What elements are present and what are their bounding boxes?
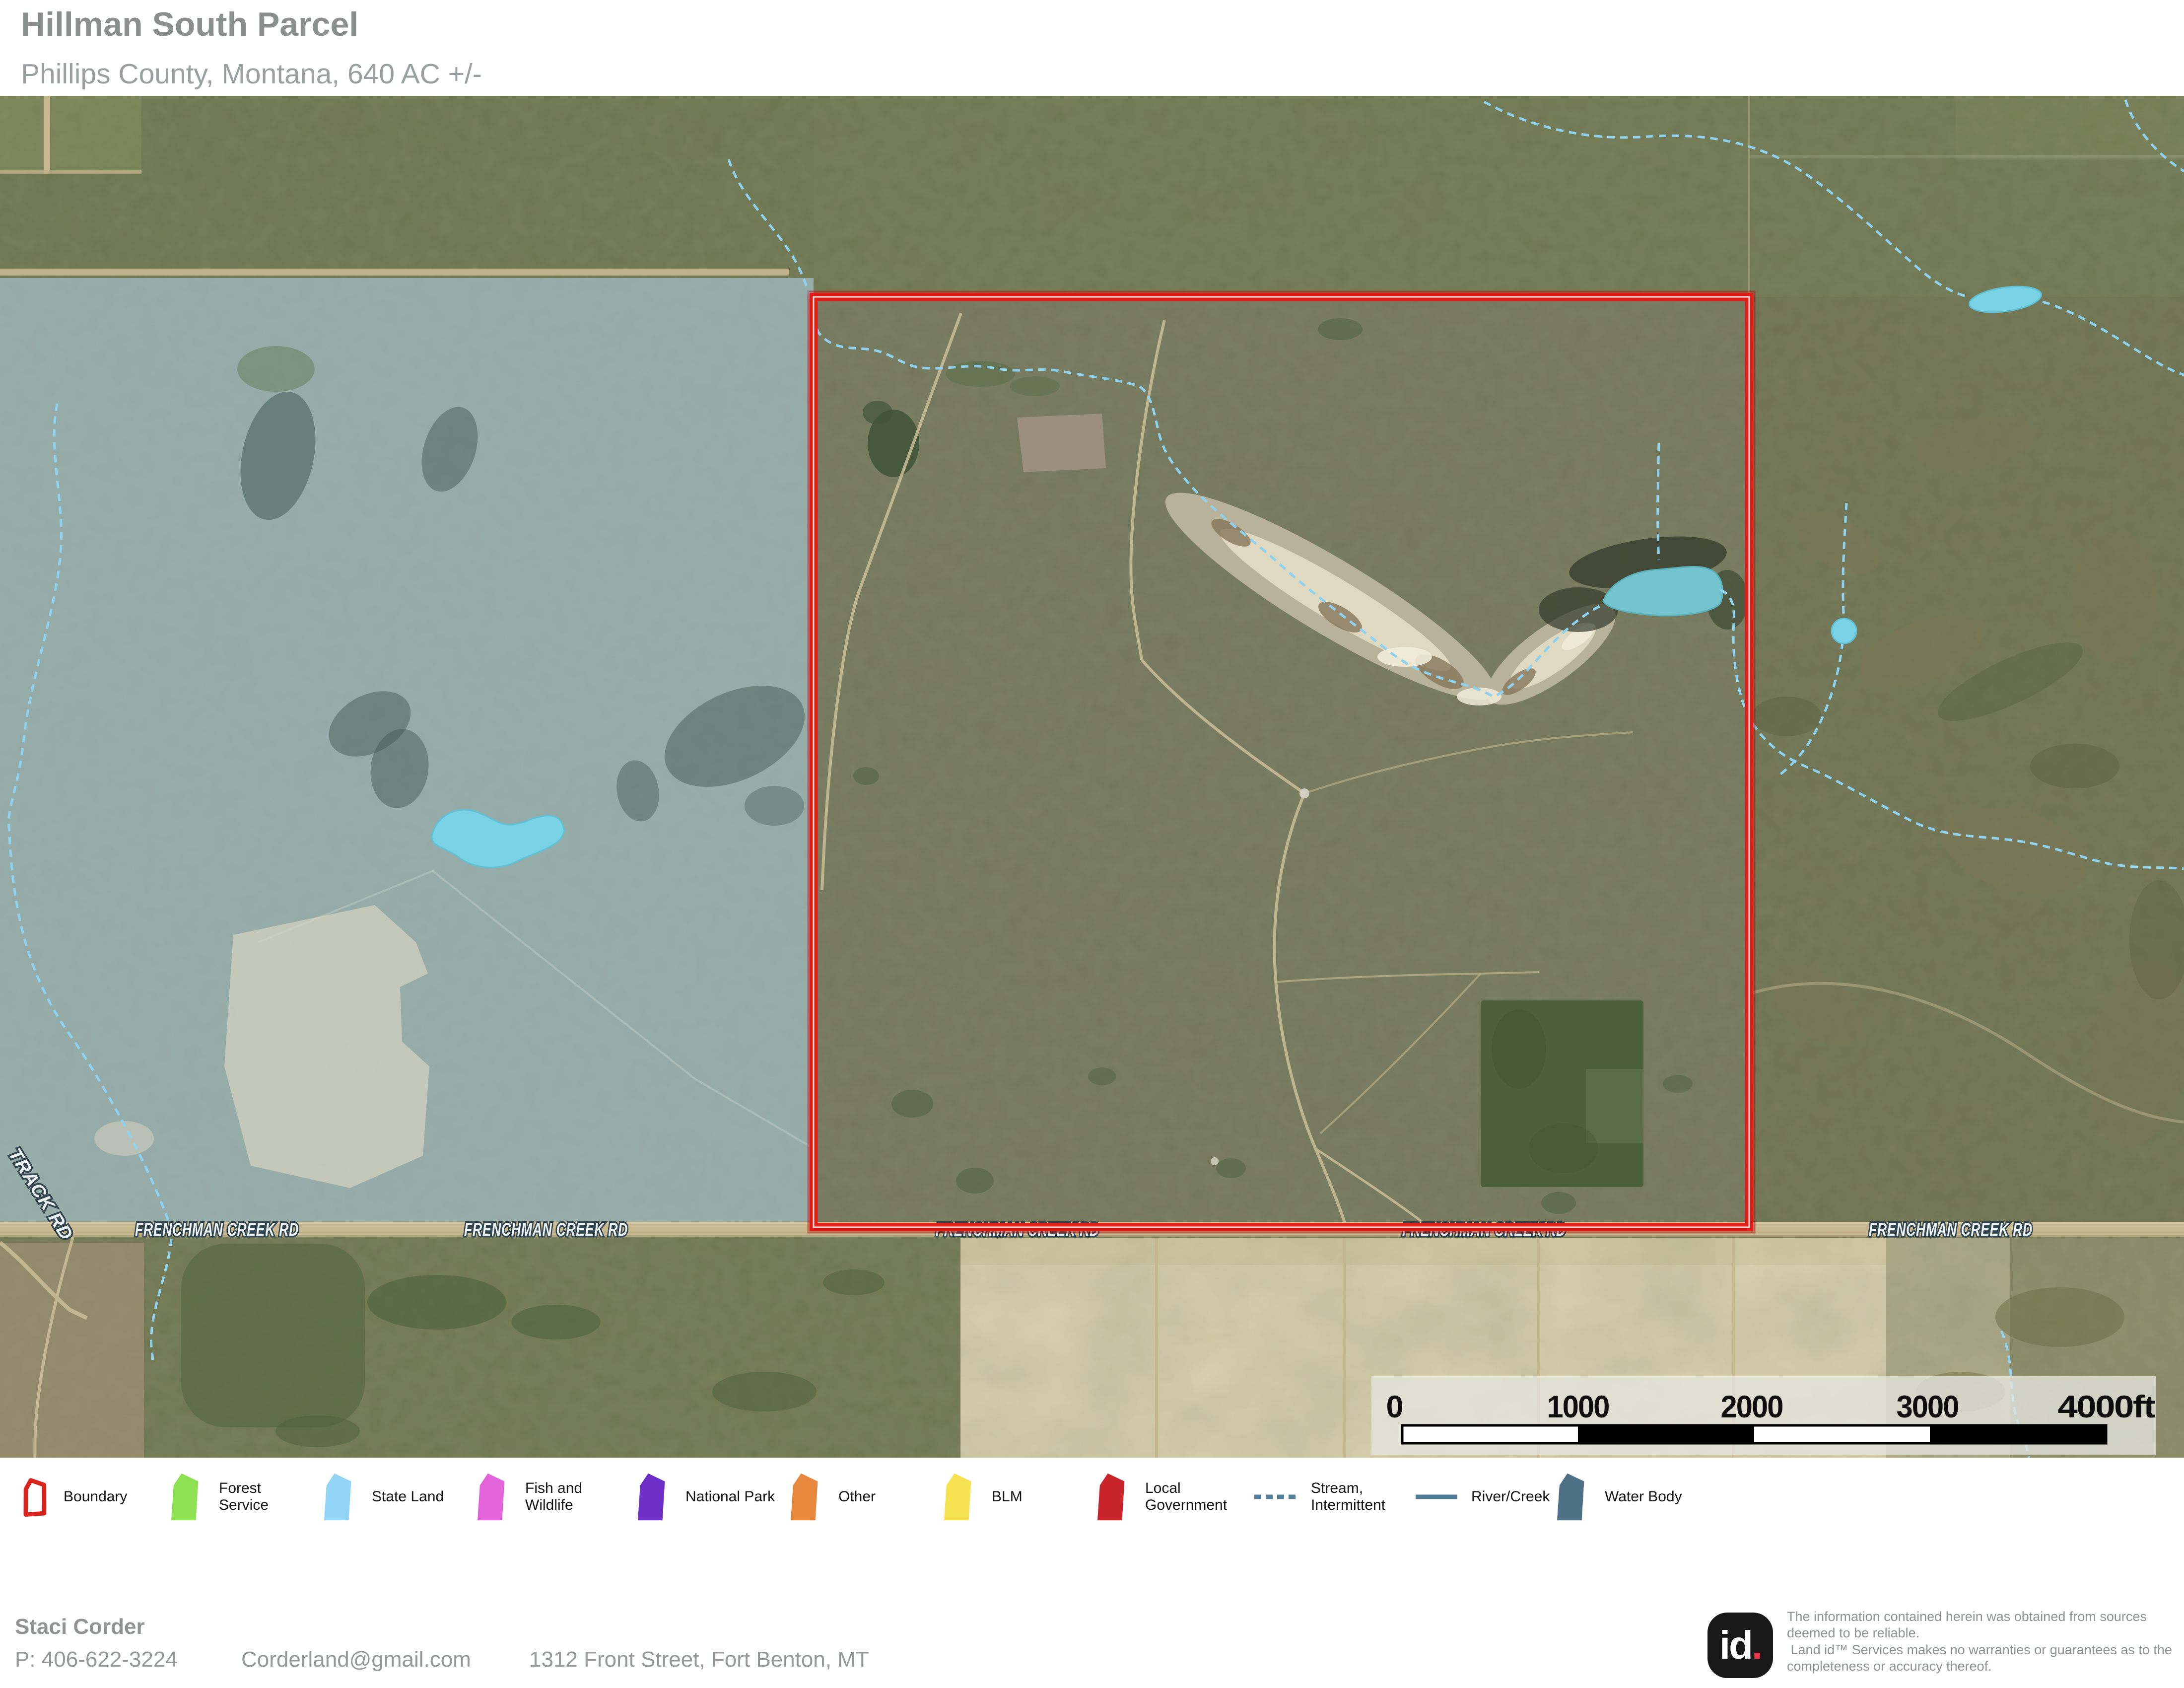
local-government-icon bbox=[1093, 1471, 1133, 1523]
scale-tick-2000: 2000 bbox=[1721, 1390, 1783, 1424]
water-body-icon bbox=[1553, 1471, 1593, 1523]
legend-label: State Land bbox=[372, 1488, 444, 1505]
legend-label: National Park bbox=[685, 1488, 775, 1505]
legend-item-local-government: Local Government bbox=[1093, 1470, 1232, 1524]
footer: Staci Corder P: 406-622-3224 Corderland@… bbox=[0, 1587, 2184, 1688]
legend-label: River/Creek bbox=[1471, 1488, 1550, 1505]
scale-tick-4000ft: 4000ft bbox=[2058, 1390, 2156, 1424]
river-creek-icon bbox=[1414, 1471, 1459, 1523]
legend-item-blm: BLM bbox=[940, 1470, 1023, 1524]
disclaimer-line-2: Land id™ Services makes no warranties or… bbox=[1787, 1642, 2184, 1675]
header: Hillman South Parcel Phillips County, Mo… bbox=[21, 5, 482, 90]
agent-address: 1312 Front Street, Fort Benton, MT bbox=[529, 1647, 869, 1672]
agent-name: Staci Corder bbox=[15, 1615, 145, 1639]
legend: Boundary Forest Service State Land Fish … bbox=[0, 1458, 2184, 1587]
agent-phone: P: 406-622-3224 bbox=[15, 1647, 178, 1672]
scale-tick-3000: 3000 bbox=[1897, 1390, 1959, 1424]
forest-service-icon bbox=[167, 1471, 207, 1523]
legend-item-state-land: State Land bbox=[320, 1470, 444, 1524]
legend-label: Water Body bbox=[1605, 1488, 1682, 1505]
state-land-overlay bbox=[0, 278, 820, 1223]
logo-text: id bbox=[1719, 1625, 1752, 1665]
legend-item-river-creek: River/Creek bbox=[1414, 1470, 1550, 1524]
legend-label: Boundary bbox=[64, 1488, 127, 1505]
land-id-logo: id. bbox=[1707, 1613, 1773, 1678]
legend-item-fish-wildlife: Fish and Wildlife bbox=[474, 1470, 592, 1524]
legend-item-boundary: Boundary bbox=[21, 1470, 127, 1524]
legend-item-other: Other bbox=[787, 1470, 876, 1524]
other-icon bbox=[787, 1471, 826, 1523]
disclaimer: The information contained herein was obt… bbox=[1787, 1609, 2184, 1675]
legend-item-stream-intermittent: Stream, Intermittent bbox=[1253, 1470, 1398, 1524]
legend-label: Other bbox=[838, 1488, 876, 1505]
scale-bar: 0 1000 2000 3000 4000ft bbox=[1371, 1376, 2156, 1455]
page-title: Hillman South Parcel bbox=[21, 5, 482, 44]
map-canvas: FRENCHMAN CREEK RD FRENCHMAN CREEK RD FR… bbox=[0, 96, 2184, 1458]
legend-item-national-park: National Park bbox=[634, 1470, 775, 1524]
fish-wildlife-icon bbox=[474, 1471, 513, 1523]
dark-field-rect bbox=[1481, 1000, 1643, 1187]
stream-intermittent-icon bbox=[1253, 1471, 1299, 1523]
road-label-1: FRENCHMAN CREEK RD bbox=[135, 1219, 299, 1240]
legend-label: Forest Service bbox=[219, 1480, 271, 1513]
legend-label: Stream, Intermittent bbox=[1311, 1480, 1398, 1513]
agent-email[interactable]: Corderland@gmail.com bbox=[241, 1647, 471, 1672]
parcel-map: FRENCHMAN CREEK RD FRENCHMAN CREEK RD FR… bbox=[0, 96, 2184, 1458]
page-subtitle: Phillips County, Montana, 640 AC +/- bbox=[21, 58, 482, 90]
national-park-icon bbox=[634, 1471, 674, 1523]
legend-item-forest-service: Forest Service bbox=[167, 1470, 271, 1524]
legend-item-water-body: Water Body bbox=[1553, 1470, 1682, 1524]
logo-dot: . bbox=[1752, 1625, 1761, 1665]
pond-east bbox=[1832, 619, 1856, 643]
cleared-square bbox=[1017, 414, 1106, 472]
road-label-5: FRENCHMAN CREEK RD bbox=[1869, 1219, 2033, 1240]
state-land-icon bbox=[320, 1471, 360, 1523]
legend-label: Fish and Wildlife bbox=[525, 1480, 592, 1513]
pale-field bbox=[224, 905, 429, 1188]
legend-label: Local Government bbox=[1145, 1480, 1232, 1513]
boundary-icon bbox=[21, 1471, 52, 1523]
scale-tick-0: 0 bbox=[1386, 1390, 1402, 1424]
legend-label: BLM bbox=[992, 1488, 1023, 1505]
blm-icon bbox=[940, 1471, 980, 1523]
scale-tick-1000: 1000 bbox=[1547, 1390, 1609, 1424]
road-label-2: FRENCHMAN CREEK RD bbox=[464, 1219, 628, 1240]
disclaimer-line-1: The information contained herein was obt… bbox=[1787, 1609, 2184, 1642]
